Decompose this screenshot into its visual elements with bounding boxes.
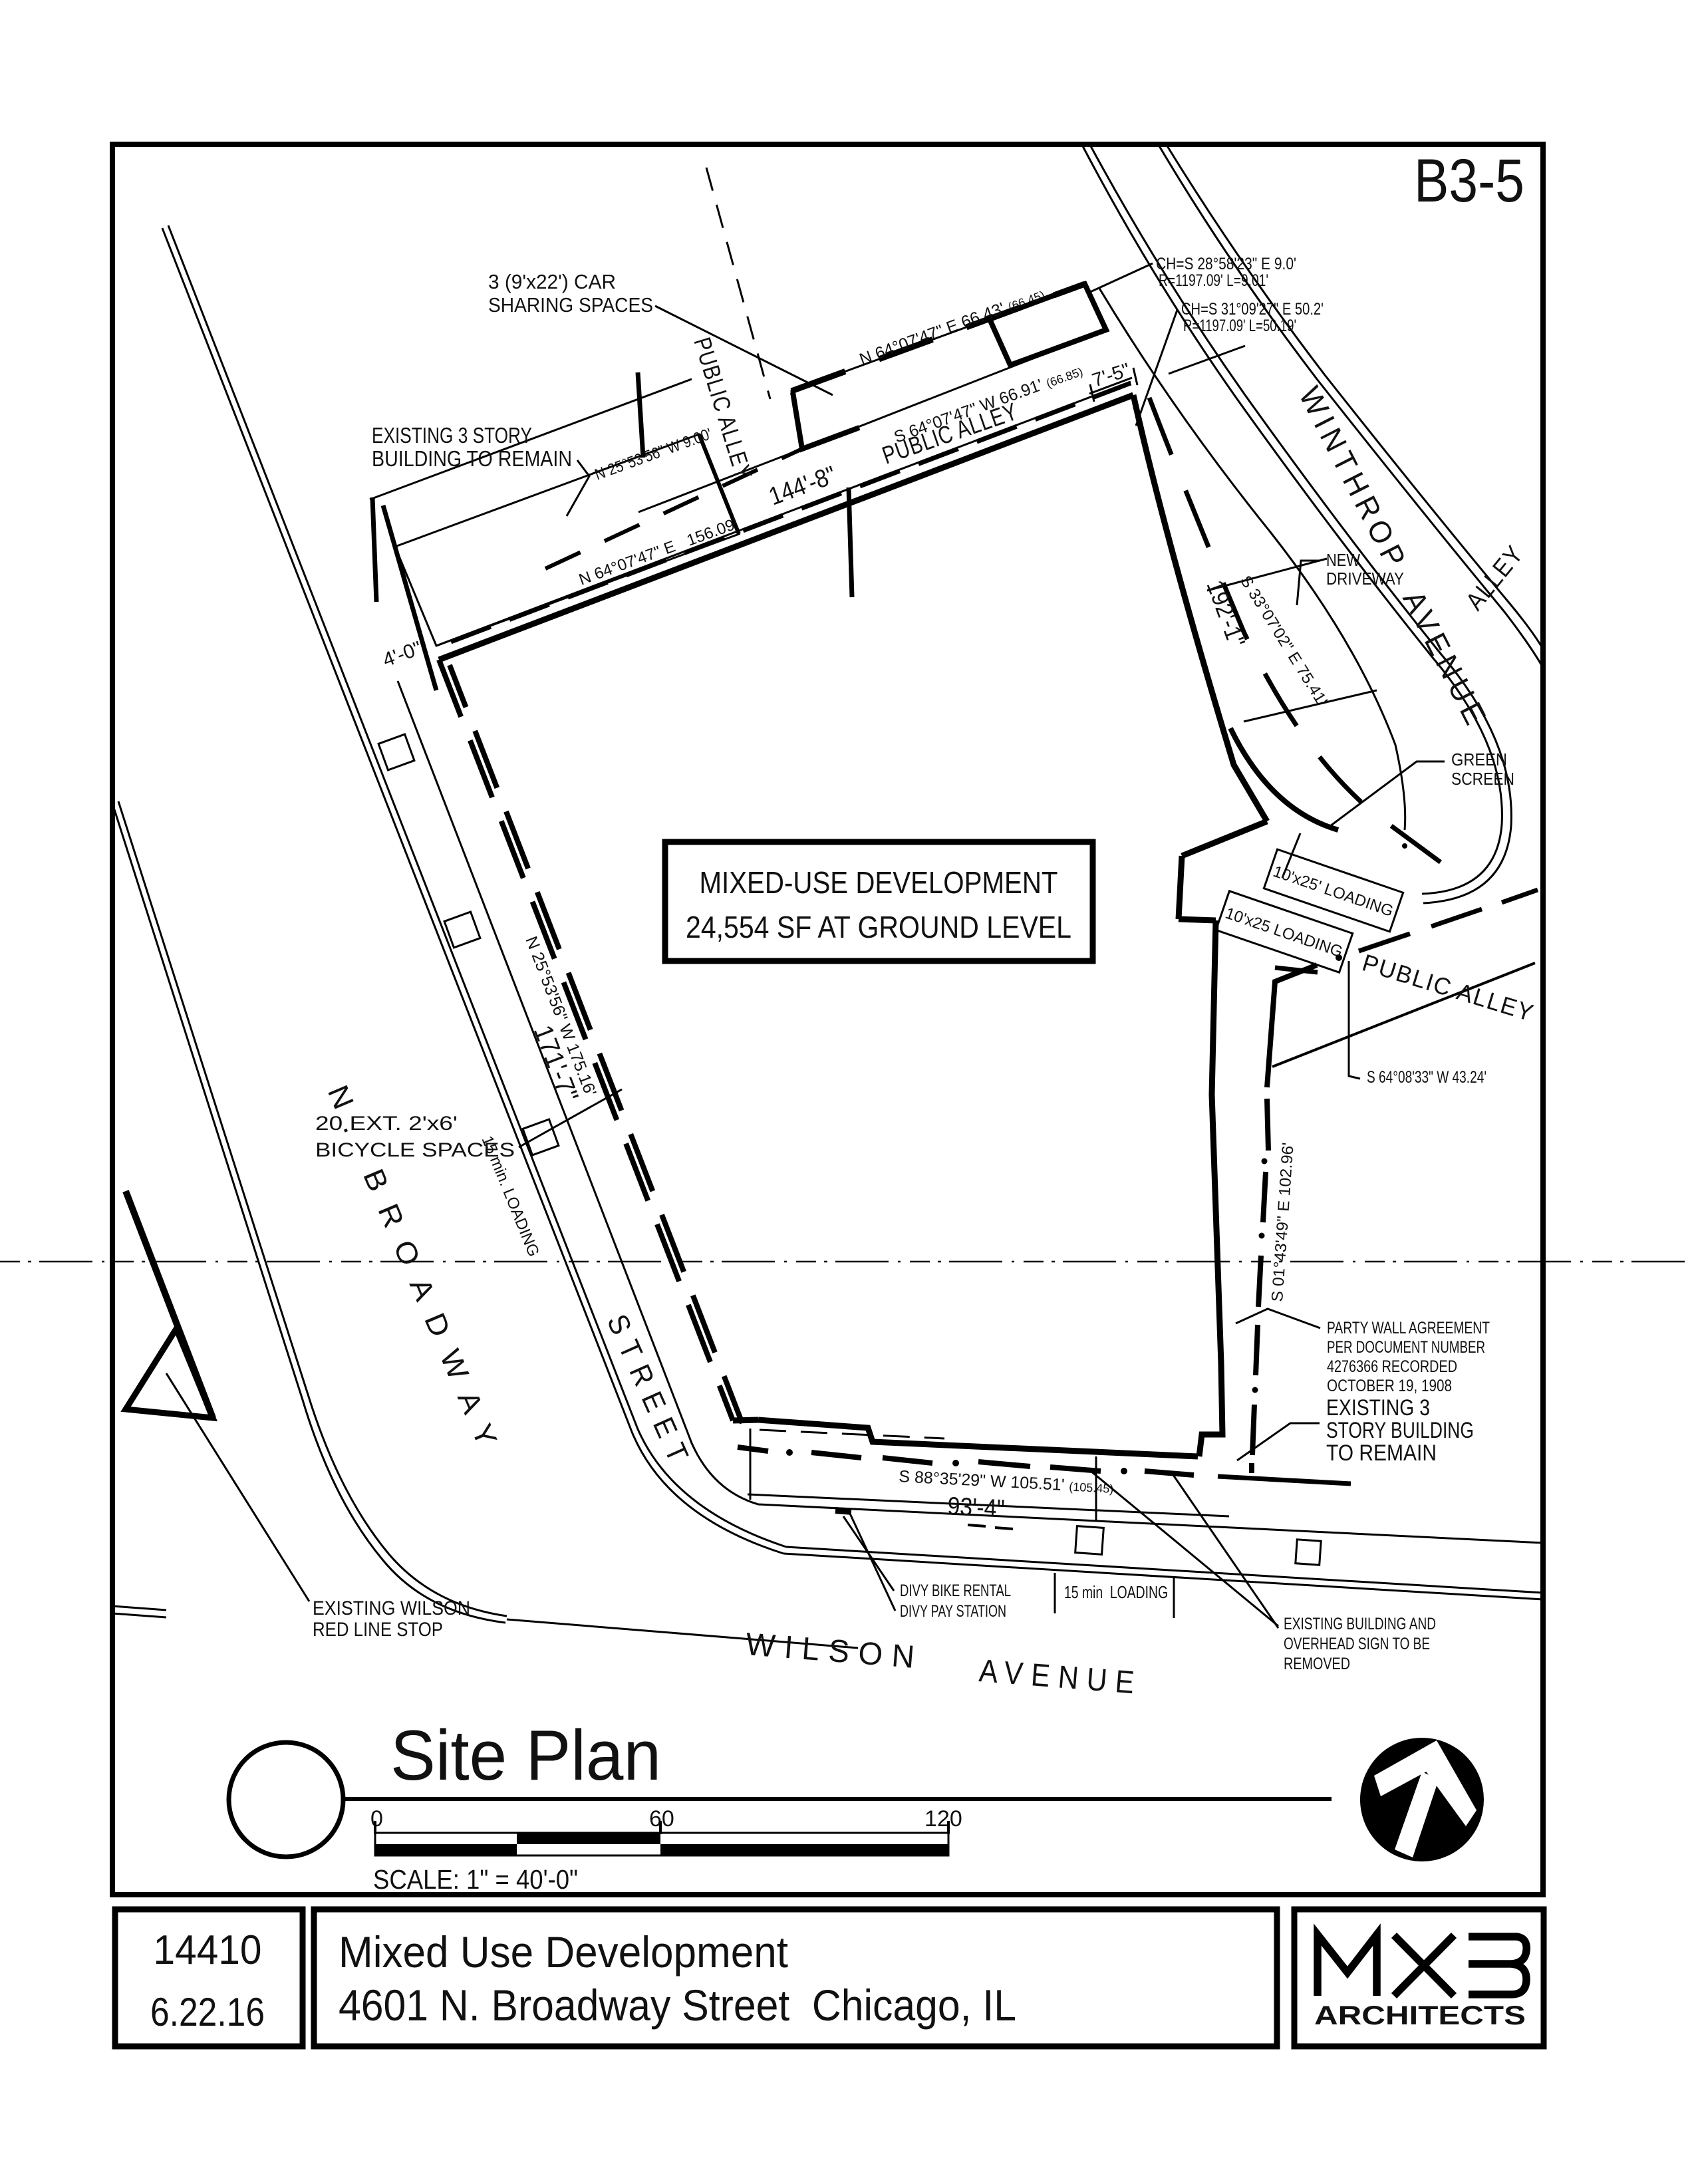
svg-text:NEW: NEW (1326, 550, 1360, 570)
svg-text:93'-4": 93'-4" (947, 1492, 1006, 1523)
svg-text:EXISTING WILSON: EXISTING WILSON (313, 1597, 470, 1619)
svg-text:TO REMAIN: TO REMAIN (1326, 1440, 1437, 1466)
svg-text:SHARING SPACES: SHARING SPACES (488, 293, 653, 317)
svg-text:EXISTING 3: EXISTING 3 (1326, 1395, 1430, 1421)
svg-text:SCREEN: SCREEN (1451, 769, 1514, 789)
svg-text:PARTY WALL AGREEMENT: PARTY WALL AGREEMENT (1327, 1319, 1490, 1337)
svg-text:R=1197.09' L=50.19': R=1197.09' L=50.19' (1183, 317, 1296, 335)
svg-text:ARCHITECTS: ARCHITECTS (1314, 2001, 1526, 2030)
svg-text:6.22.16: 6.22.16 (150, 1990, 265, 2034)
svg-text:DIVY BIKE RENTAL: DIVY BIKE RENTAL (900, 1581, 1011, 1600)
svg-text:DIVY PAY STATION: DIVY PAY STATION (900, 1602, 1006, 1621)
svg-text:24,554 SF AT GROUND LEVEL: 24,554 SF AT GROUND LEVEL (686, 910, 1071, 944)
svg-text:DRIVEWAY: DRIVEWAY (1326, 569, 1404, 589)
svg-text:EXISTING BUILDING AND: EXISTING BUILDING AND (1284, 1615, 1436, 1633)
svg-text:MIXED-USE DEVELOPMENT: MIXED-USE DEVELOPMENT (700, 865, 1058, 900)
svg-text:EXISTING 3 STORY: EXISTING 3 STORY (372, 423, 532, 448)
svg-text:B3-5: B3-5 (1414, 147, 1524, 215)
svg-text:OCTOBER 19, 1908: OCTOBER 19, 1908 (1327, 1377, 1452, 1395)
svg-text:15 min LOADING: 15 min LOADING (1064, 1582, 1168, 1602)
svg-text:RED LINE STOP: RED LINE STOP (313, 1619, 443, 1641)
svg-text:SCALE: 1" = 40'-0": SCALE: 1" = 40'-0" (373, 1864, 578, 1895)
svg-text:14410: 14410 (154, 1927, 262, 1973)
svg-text:STORY BUILDING: STORY BUILDING (1326, 1418, 1474, 1443)
svg-text:3 (9'x22') CAR: 3 (9'x22') CAR (488, 270, 616, 293)
svg-text:CH=S 31°09'27" E 50.2': CH=S 31°09'27" E 50.2' (1181, 300, 1324, 319)
svg-text:120: 120 (924, 1806, 962, 1832)
svg-text:GREEN: GREEN (1451, 750, 1507, 769)
svg-text:4276366 RECORDED: 4276366 RECORDED (1327, 1357, 1457, 1376)
svg-text:CH=S 28°58'23" E 9.0': CH=S 28°58'23" E 9.0' (1156, 255, 1296, 273)
svg-text:0: 0 (370, 1806, 383, 1832)
svg-text:4601 N. Broadway Street Chica: 4601 N. Broadway Street Chicago, IL (339, 1980, 1016, 2030)
svg-text:OVERHEAD SIGN TO BE: OVERHEAD SIGN TO BE (1284, 1635, 1430, 1653)
svg-text:Site Plan: Site Plan (390, 1715, 661, 1795)
svg-text:BUILDING TO REMAIN: BUILDING TO REMAIN (372, 446, 572, 471)
svg-text:S 64°08'33" W 43.24': S 64°08'33" W 43.24' (1367, 1068, 1486, 1087)
svg-text:20 EXT. 2'x6': 20 EXT. 2'x6' (315, 1113, 458, 1135)
svg-text:R=1197.09' L=9.01': R=1197.09' L=9.01' (1159, 271, 1268, 290)
svg-text:Mixed Use Development: Mixed Use Development (339, 1927, 788, 1977)
svg-text:PER DOCUMENT NUMBER: PER DOCUMENT NUMBER (1327, 1338, 1485, 1357)
svg-text:REMOVED: REMOVED (1284, 1655, 1350, 1673)
